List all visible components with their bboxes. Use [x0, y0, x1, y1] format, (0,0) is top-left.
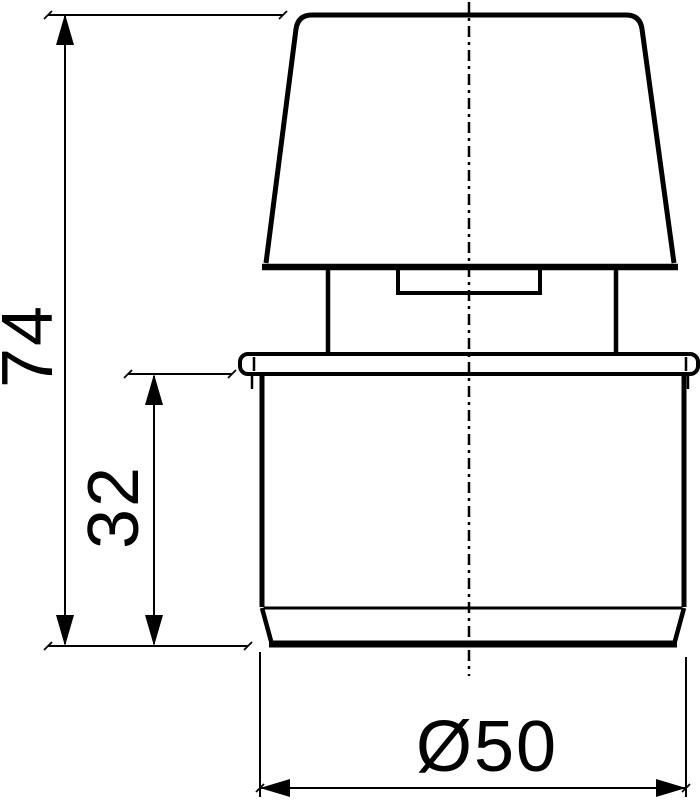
dim-label-diameter: Ø50 [416, 707, 558, 787]
part-outline-group [240, 2, 698, 676]
extension-end-ticks [44, 11, 690, 792]
technical-drawing-canvas: 74 32 Ø50 [0, 0, 700, 800]
arrow-up-icon [56, 14, 74, 45]
body-right-taper [675, 608, 684, 641]
arrow-up-icon [145, 374, 163, 405]
dim-label-overall-height: 74 [0, 304, 68, 388]
arrow-right-icon [656, 779, 686, 797]
arrow-down-icon [56, 615, 74, 646]
body-left-taper [262, 608, 271, 641]
drawing-sheet: 74 32 Ø50 [0, 0, 700, 800]
dimension-arrowheads-group [56, 14, 686, 797]
arrow-down-icon [145, 615, 163, 646]
dim-label-socket-height: 32 [74, 465, 154, 549]
dimension-lines-group [44, 11, 690, 797]
arrow-left-icon [260, 779, 290, 797]
